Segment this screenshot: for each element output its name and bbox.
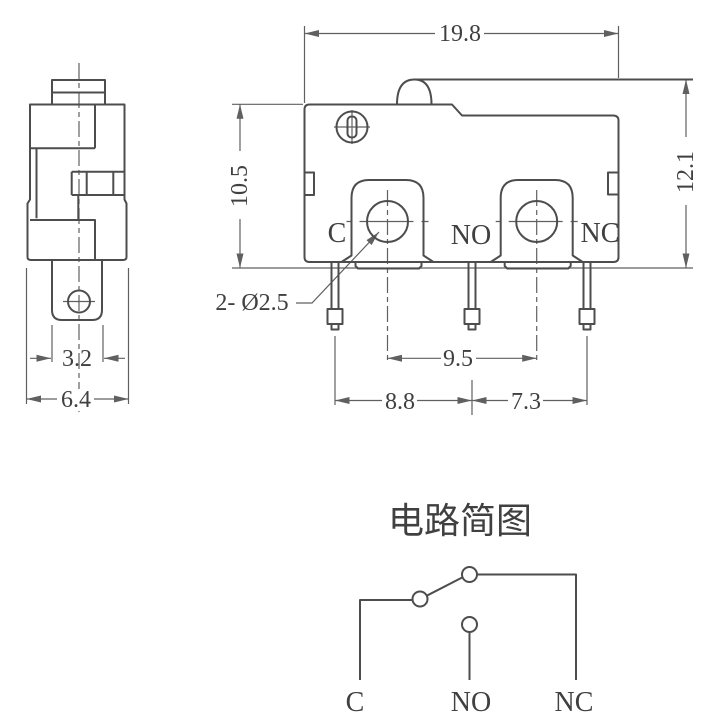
hole-centerlines — [388, 190, 537, 364]
hole-callout-text: 2- Ø2.5 — [215, 290, 288, 316]
dim-text-10-5: 10.5 — [227, 165, 253, 207]
microswitch-technical-drawing: 3.2 6.4 19.8 10.5 12.1 9.5 8.8 7.3 2- Ø2… — [0, 0, 720, 721]
circuit-contact-no — [462, 617, 477, 632]
circuit-label-no: NO — [451, 687, 491, 718]
part-outlines — [28, 80, 694, 681]
left-side-notch — [305, 173, 315, 196]
pin-c — [328, 262, 343, 330]
side-body-inner-detail — [30, 105, 125, 261]
front-view — [305, 80, 694, 330]
microswitch-drawing-page: 3.2 6.4 19.8 10.5 12.1 9.5 8.8 7.3 2- Ø2… — [0, 0, 720, 721]
dim-text-7-3: 7.3 — [511, 389, 541, 415]
screw-crosshair — [334, 110, 370, 144]
dim-text-9-5: 9.5 — [443, 346, 473, 372]
front-label-no: NO — [451, 220, 491, 251]
side-body-outline — [28, 105, 127, 261]
pin-nc — [580, 262, 595, 330]
dim-text-8-8: 8.8 — [385, 389, 415, 415]
circuit-contact-c — [413, 592, 428, 607]
circuit-label-nc: NC — [555, 687, 594, 718]
lever-hinge-curl — [397, 80, 432, 105]
dim-text-6-4: 6.4 — [61, 387, 91, 413]
circuit-title: 电路简图 — [388, 501, 532, 541]
annotation-text: 3.2 6.4 19.8 10.5 12.1 9.5 8.8 7.3 2- Ø2… — [61, 21, 699, 718]
dim-text-12-1: 12.1 — [673, 151, 699, 193]
pin-no — [465, 262, 480, 330]
circuit-wire-c — [360, 600, 413, 680]
side-view — [28, 80, 127, 320]
dim-text-3-2: 3.2 — [62, 346, 92, 372]
front-label-c: C — [328, 218, 347, 249]
circuit-label-c: C — [346, 687, 365, 718]
right-side-notch — [608, 173, 619, 195]
circuit-wire-nc — [477, 575, 576, 681]
circuit-contact-common-pivot — [462, 567, 477, 582]
front-label-nc: NC — [581, 218, 620, 249]
circuit-schematic — [360, 567, 576, 680]
side-extension-lines — [27, 268, 129, 404]
circuit-switch-lever — [427, 577, 463, 595]
dim-text-19-8: 19.8 — [439, 21, 481, 47]
